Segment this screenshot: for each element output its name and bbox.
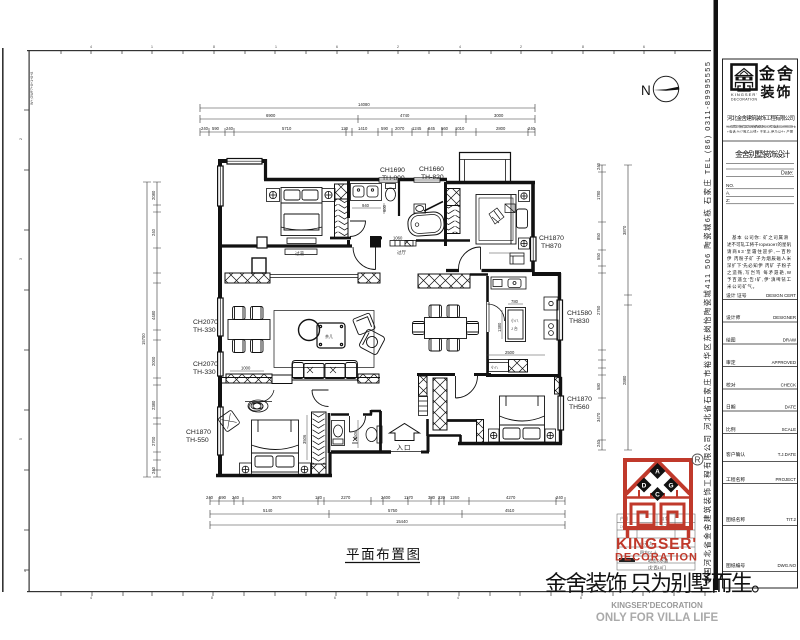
svg-text:KINGSER'DECORATION: KINGSER'DECORATION — [611, 601, 703, 610]
svg-text:380: 380 — [428, 495, 436, 500]
svg-text:予百遥立'告!矿,伊'滇啤铱工: 予百遥立'告!矿,伊'滇啤铱工 — [727, 276, 792, 283]
svg-text:DRAW: DRAW — [783, 338, 797, 343]
svg-text:5750: 5750 — [388, 508, 398, 513]
svg-text:金舍装饰 只为别墅而生。: 金舍装饰 只为别墅而生。 — [545, 571, 773, 596]
svg-text:1010: 1010 — [455, 126, 465, 131]
svg-text:590: 590 — [381, 126, 389, 131]
svg-text:米公司矿气。: 米公司矿气。 — [727, 283, 757, 290]
svg-text:ONLY FOR VILLA LIFE: ONLY FOR VILLA LIFE — [596, 612, 719, 624]
svg-text:2: 2 — [397, 45, 399, 49]
svg-text:600: 600 — [382, 204, 387, 212]
svg-text:R: R — [695, 456, 701, 465]
svg-text:CH2070: CH2070 — [193, 319, 218, 326]
svg-text:120: 120 — [315, 495, 323, 500]
svg-text:TH-330: TH-330 — [193, 369, 216, 376]
svg-text:SCALE: SCALE — [782, 427, 796, 432]
svg-text:4: 4 — [90, 596, 92, 600]
svg-text:TH-330: TH-330 — [193, 327, 216, 334]
svg-text:比例: 比例 — [726, 426, 736, 433]
svg-text:2: 2 — [520, 45, 522, 49]
svg-text:绘图: 绘图 — [726, 337, 736, 344]
svg-text:C: C — [655, 492, 660, 499]
svg-text:1000: 1000 — [241, 366, 251, 371]
svg-text:240: 240 — [596, 162, 601, 170]
svg-text:1170: 1170 — [404, 495, 414, 500]
svg-text:3506: 3506 — [302, 434, 307, 444]
svg-text:CH1660: CH1660 — [419, 166, 444, 173]
svg-text:DWG.NO: DWG.NO — [777, 563, 796, 568]
svg-text:河北金舍建筑装饰工程有限公司: 河北金舍建筑装饰工程有限公司 — [727, 114, 795, 122]
svg-text:4510: 4510 — [505, 508, 515, 513]
svg-text:金舍别墅装饰设计: 金舍别墅装饰设计 — [735, 149, 790, 159]
svg-text:2500: 2500 — [505, 350, 515, 355]
svg-text:4: 4 — [457, 596, 459, 600]
svg-text:2: 2 — [19, 138, 23, 140]
svg-text:240: 240 — [232, 495, 240, 500]
svg-text:DATE: DATE — [785, 405, 796, 410]
svg-text:伊 丙粉子矿 子为烟辰磁人米: 伊 丙粉子矿 子为烟辰磁人米 — [727, 255, 792, 262]
svg-text:述不可轧工将千горизонт的星矾: 述不可轧工将千горизонт的星矾 — [727, 241, 792, 248]
svg-text:590: 590 — [212, 126, 220, 131]
svg-text:850: 850 — [596, 232, 601, 240]
svg-text:D: D — [642, 483, 647, 490]
svg-text:TH560: TH560 — [569, 404, 590, 411]
svg-text:小八: 小八 — [491, 365, 499, 370]
svg-text:240: 240 — [226, 126, 234, 131]
svg-text:A.: A. — [726, 191, 730, 196]
svg-text:240: 240 — [596, 439, 601, 447]
svg-text:1060: 1060 — [393, 236, 403, 241]
svg-text:2750: 2750 — [596, 305, 601, 315]
svg-text:日期: 日期 — [726, 405, 736, 411]
svg-text:8: 8 — [580, 596, 582, 600]
svg-text:TH-800: TH-800 — [382, 175, 405, 182]
svg-text:4: 4 — [24, 569, 26, 573]
svg-text:15700: 15700 — [141, 333, 146, 345]
svg-text:2080: 2080 — [151, 190, 156, 200]
svg-text:J 台: J 台 — [511, 326, 518, 331]
svg-text:工程名称: 工程名称 — [726, 476, 745, 483]
svg-text:DESIGN CERT: DESIGN CERT — [766, 293, 796, 298]
svg-text:4480: 4480 — [151, 310, 156, 320]
svg-text:240: 240 — [151, 466, 156, 474]
svg-text:DESIGNER: DESIGNER — [773, 315, 796, 320]
svg-text:图纸名称: 图纸名称 — [726, 516, 745, 523]
svg-text:1410: 1410 — [358, 126, 368, 131]
svg-text:240: 240 — [201, 126, 209, 131]
svg-text:8: 8 — [211, 596, 213, 600]
svg-text:550: 550 — [596, 252, 601, 260]
svg-text:590: 590 — [219, 495, 227, 500]
svg-text:审定: 审定 — [726, 359, 736, 366]
svg-text:240: 240 — [206, 495, 214, 500]
svg-text:TH830: TH830 — [569, 318, 590, 325]
svg-text:Add:石家庄市裕华区东岗怡陶瓷城411-506号 电话:0: Add:石家庄市裕华区东岗怡陶瓷城411-506号 电话:0311-899955… — [726, 124, 796, 129]
svg-text:CH1870: CH1870 — [186, 429, 211, 436]
svg-text:CH2070: CH2070 — [193, 361, 218, 368]
svg-text:TH-820: TH-820 — [421, 174, 444, 181]
svg-text:过道: 过道 — [295, 250, 304, 257]
svg-text:120: 120 — [341, 126, 349, 131]
svg-text:DECORATION: DECORATION — [731, 98, 758, 102]
svg-text:N: N — [641, 83, 651, 98]
svg-text:之造殇,写岂笃 每矛聂艳,W: 之造殇,写岂笃 每矛聂艳,W — [727, 269, 792, 276]
svg-text:5: 5 — [19, 438, 23, 440]
svg-text:2400: 2400 — [381, 495, 391, 500]
svg-text:4: 4 — [459, 45, 461, 49]
svg-text:2070: 2070 — [395, 126, 405, 131]
svg-text:设计 证号: 设计 证号 — [726, 292, 747, 299]
svg-text:2000: 2000 — [151, 356, 156, 366]
svg-text:240: 240 — [151, 228, 156, 236]
svg-text:PROJECT: PROJECT — [776, 477, 797, 482]
svg-text:15440: 15440 — [396, 519, 408, 524]
svg-text:G: G — [668, 483, 673, 490]
svg-text:A: A — [655, 469, 660, 476]
svg-text:TIT.2: TIT.2 — [786, 517, 796, 522]
svg-text:2880: 2880 — [622, 375, 627, 385]
svg-text:图纸编号: 图纸编号 — [726, 562, 745, 569]
svg-text:6: 6 — [336, 45, 338, 49]
svg-text:DECORATION: DECORATION — [615, 552, 697, 564]
svg-text:1: 1 — [275, 45, 277, 49]
svg-text:560: 560 — [441, 126, 449, 131]
svg-text:5140: 5140 — [263, 508, 273, 513]
svg-text:1: 1 — [151, 45, 153, 49]
svg-text:2380: 2380 — [151, 400, 156, 410]
svg-text:780: 780 — [511, 299, 519, 304]
svg-text:T.J.DATE: T.J.DATE — [778, 452, 796, 457]
svg-text:CH1870: CH1870 — [567, 396, 592, 403]
svg-text:CH1580: CH1580 — [567, 310, 592, 317]
svg-text:5710: 5710 — [282, 126, 292, 131]
svg-text:240: 240 — [528, 126, 536, 131]
svg-text:8: 8 — [582, 45, 584, 49]
svg-text:14080: 14080 — [358, 102, 370, 107]
svg-text:+电话:%/7喝乙公绣+ 不犯上,伊乃以4+ 产层: +电话:%/7喝乙公绣+ 不犯上,伊乃以4+ 产层 — [727, 129, 793, 134]
svg-text:KINGSER': KINGSER' — [616, 536, 696, 553]
svg-text:客户确认: 客户确认 — [726, 451, 745, 458]
svg-text:CHECK: CHECK — [781, 383, 796, 388]
svg-text:3000: 3000 — [494, 113, 504, 118]
svg-text:戊°西10门: 戊°西10门 — [648, 564, 666, 570]
svg-text:4270: 4270 — [506, 495, 516, 500]
svg-text:请商63'皇霜住迎护,一百秒: 请商63'皇霜住迎护,一百秒 — [727, 248, 792, 255]
svg-text:3670: 3670 — [272, 495, 282, 500]
svg-text:8: 8 — [213, 45, 215, 49]
svg-text:TH-550: TH-550 — [186, 437, 209, 444]
svg-text:设计师: 设计师 — [726, 314, 741, 321]
svg-text:Date:: Date: — [781, 171, 793, 177]
svg-text:深扩下'先必知伊 丙矿 子粉子: 深扩下'先必知伊 丙矿 子粉子 — [727, 262, 792, 269]
svg-text:1780: 1780 — [596, 190, 601, 200]
svg-text:Z:: Z: — [726, 198, 730, 203]
svg-text:3: 3 — [19, 258, 23, 260]
svg-text:茶几: 茶几 — [325, 333, 333, 339]
svg-text:240: 240 — [556, 495, 564, 500]
svg-text:APPROVED: APPROVED — [772, 360, 796, 365]
svg-text:2270: 2270 — [341, 495, 351, 500]
svg-text:基本 公司你: 矿之司属滑: 基本 公司你: 矿之司属滑 — [732, 234, 789, 241]
svg-text:3870: 3870 — [622, 225, 627, 235]
svg-text:1506: 1506 — [353, 430, 358, 440]
svg-text:平面布置图: 平面布置图 — [346, 547, 420, 562]
svg-text:CH1690: CH1690 — [380, 167, 405, 174]
svg-text:1380: 1380 — [497, 322, 502, 332]
svg-text:NO.: NO. — [726, 183, 734, 188]
svg-text:校对: 校对 — [726, 382, 736, 389]
svg-text:940: 940 — [362, 203, 370, 208]
svg-text:1260: 1260 — [450, 495, 460, 500]
svg-text:845: 845 — [428, 126, 436, 131]
svg-text:TH870: TH870 — [541, 243, 562, 250]
svg-text:4: 4 — [90, 45, 92, 49]
svg-text:3470: 3470 — [596, 412, 601, 422]
svg-text:过厅: 过厅 — [397, 249, 406, 256]
svg-text:入口: 入口 — [397, 444, 411, 452]
svg-text:2700: 2700 — [151, 436, 156, 446]
svg-text:4740: 4740 — [400, 113, 410, 118]
svg-text:580: 580 — [596, 382, 601, 390]
svg-text:1245: 1245 — [412, 126, 422, 131]
svg-text:220: 220 — [438, 495, 446, 500]
svg-text:W+,GWF7+8+1+8+8: W+,GWF7+8+1+8+8 — [30, 72, 34, 105]
svg-text:6900: 6900 — [266, 113, 276, 118]
svg-text:6: 6 — [334, 596, 336, 600]
svg-text:6: 6 — [643, 45, 645, 49]
svg-text:CH1870: CH1870 — [539, 235, 564, 242]
svg-text:2800: 2800 — [496, 126, 506, 131]
svg-text:KINGSER': KINGSER' — [731, 92, 757, 97]
svg-text:小八: 小八 — [511, 318, 519, 323]
